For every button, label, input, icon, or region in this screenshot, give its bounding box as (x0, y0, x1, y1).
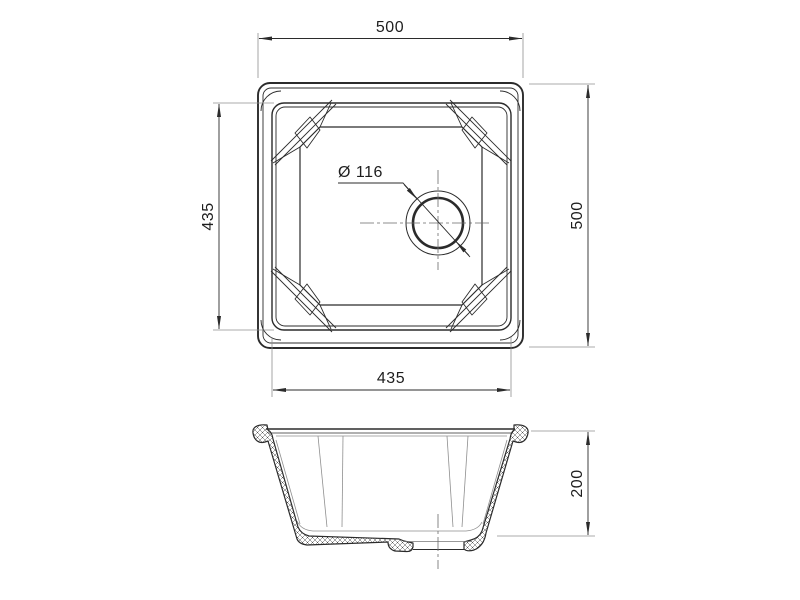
extension-lines (213, 33, 595, 536)
dim-bowl-inner-width-label: 435 (377, 370, 405, 387)
corner-detail-top-right (446, 100, 511, 165)
corner-detail-top-left (271, 100, 336, 165)
drain-diameter-label: Ø 116 (338, 164, 383, 181)
dim-overall-depth-label: 500 (569, 201, 586, 229)
section-wall-right (464, 425, 528, 551)
drain-centerlines (360, 170, 492, 270)
dim-bowl-height-label: 200 (569, 469, 586, 497)
dimensions: 500 500 435 435 Ø 116 200 (200, 19, 595, 536)
section-view (253, 425, 528, 569)
dim-overall-width-label: 500 (376, 19, 404, 36)
technical-drawing: 500 500 435 435 Ø 116 200 (0, 0, 800, 600)
corner-detail-bottom-left (271, 267, 336, 332)
bowl-rim-inner (276, 107, 507, 326)
dim-bowl-inner-depth-label: 435 (200, 202, 217, 230)
drain-hole (360, 170, 492, 270)
corner-detail-bottom-right (446, 267, 511, 332)
drawing-canvas: 500 500 435 435 Ø 116 200 (0, 0, 800, 600)
top-view (258, 83, 523, 348)
drain-leader-arrow-upper (404, 185, 417, 200)
interior-projection-lines (276, 436, 507, 531)
bowl-bottom-octagon (300, 127, 482, 305)
bowl-rim-outer (272, 103, 511, 330)
sink-outer-edge (258, 83, 523, 348)
